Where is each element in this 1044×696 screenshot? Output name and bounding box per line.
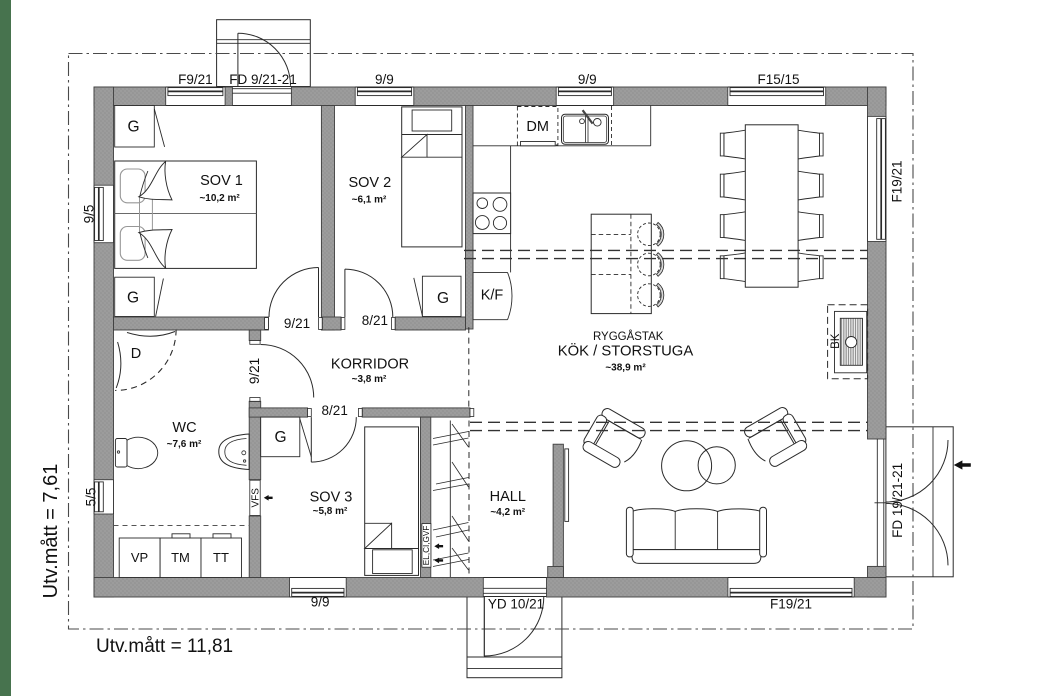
svg-text:G: G — [127, 290, 139, 307]
svg-text:WC: WC — [172, 420, 196, 436]
svg-text:RYGGÅSTAK: RYGGÅSTAK — [593, 330, 664, 343]
svg-text:HALL: HALL — [490, 489, 526, 505]
svg-text:EL,CI,GVF: EL,CI,GVF — [422, 526, 431, 566]
svg-text:F19/21: F19/21 — [890, 160, 905, 202]
svg-text:5/5: 5/5 — [84, 488, 99, 507]
svg-text:BK: BK — [830, 333, 842, 349]
svg-text:~6,1 m²: ~6,1 m² — [352, 195, 387, 206]
svg-text:FD 9/21-21: FD 9/21-21 — [229, 72, 297, 87]
svg-text:~38,9 m²: ~38,9 m² — [605, 363, 646, 374]
svg-text:SOV 3: SOV 3 — [310, 490, 353, 506]
svg-text:Utv.mått = 11,81: Utv.mått = 11,81 — [96, 636, 233, 657]
svg-text:9/9: 9/9 — [311, 595, 330, 610]
svg-text:K/F: K/F — [481, 288, 504, 304]
svg-text:YD 10/21: YD 10/21 — [488, 597, 544, 612]
svg-text:8/21: 8/21 — [322, 403, 348, 418]
svg-text:9/5: 9/5 — [82, 205, 97, 224]
svg-text:~10,2 m²: ~10,2 m² — [199, 193, 240, 204]
svg-text:9/9: 9/9 — [578, 72, 597, 87]
svg-text:F9/21: F9/21 — [178, 72, 213, 87]
svg-text:VFS: VFS — [250, 488, 261, 508]
svg-text:~4,2 m²: ~4,2 m² — [490, 507, 525, 518]
svg-text:G: G — [127, 119, 139, 136]
svg-text:FD 19/21-21: FD 19/21-21 — [890, 463, 905, 538]
svg-text:DM: DM — [526, 119, 549, 135]
svg-text:KÖK / STORSTUGA: KÖK / STORSTUGA — [558, 342, 694, 360]
svg-text:D: D — [131, 346, 141, 362]
svg-text:~5,8 m²: ~5,8 m² — [313, 506, 348, 517]
svg-text:9/21: 9/21 — [247, 358, 262, 384]
svg-text:SOV 1: SOV 1 — [200, 173, 243, 189]
svg-text:8/21: 8/21 — [362, 313, 388, 328]
svg-text:Utv.mått = 7,61: Utv.mått = 7,61 — [40, 464, 62, 599]
svg-text:TT: TT — [213, 550, 229, 565]
svg-text:F15/15: F15/15 — [757, 72, 799, 87]
svg-text:~3,8 m²: ~3,8 m² — [352, 374, 387, 385]
svg-text:9/9: 9/9 — [375, 72, 394, 87]
svg-text:G: G — [274, 429, 286, 446]
svg-text:G: G — [437, 290, 449, 307]
svg-text:9/21: 9/21 — [284, 316, 310, 331]
svg-text:SOV 2: SOV 2 — [348, 175, 391, 191]
svg-text:F19/21: F19/21 — [770, 597, 812, 612]
svg-text:VP: VP — [131, 550, 148, 565]
svg-text:TM: TM — [171, 550, 190, 565]
svg-text:~7,6 m²: ~7,6 m² — [167, 439, 202, 450]
svg-text:KORRIDOR: KORRIDOR — [331, 357, 409, 373]
